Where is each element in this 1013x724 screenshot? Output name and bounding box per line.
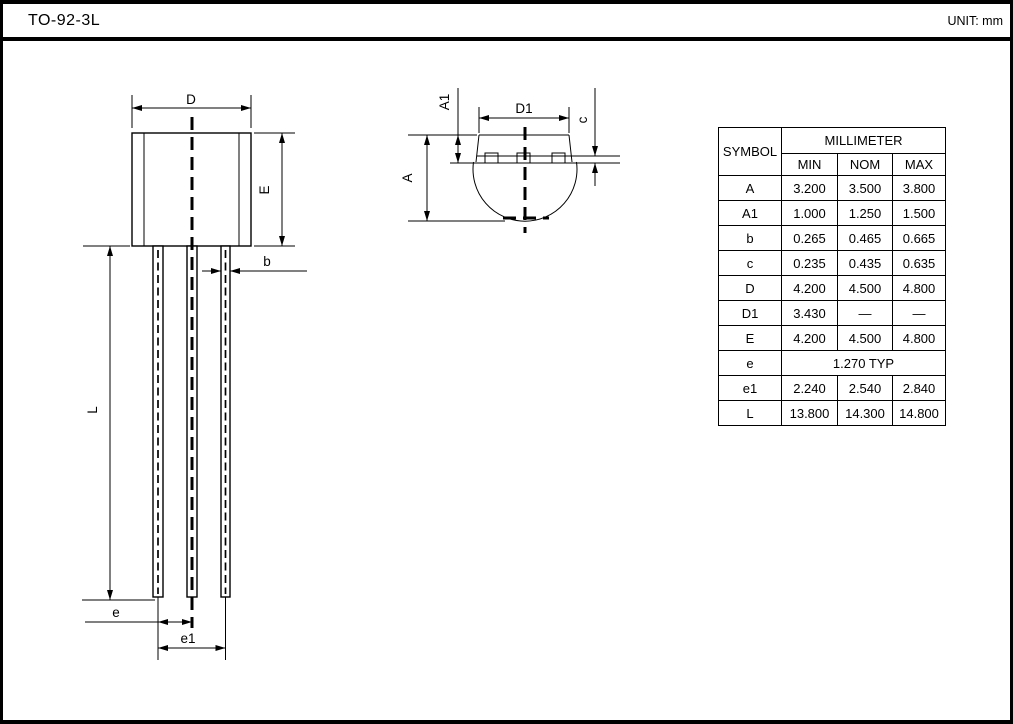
lead-3-cross-section	[552, 153, 565, 163]
table-header-max: MAX	[893, 154, 946, 176]
min-cell: 13.800	[782, 401, 838, 426]
min-cell: 4.200	[782, 326, 838, 351]
nom-cell: 2.540	[838, 376, 893, 401]
unit-label: UNIT: mm	[947, 4, 1003, 37]
min-cell: 4.200	[782, 276, 838, 301]
top-view-drawing: A A1 D1 c	[395, 75, 630, 240]
max-cell: 1.500	[893, 201, 946, 226]
max-cell: 0.665	[893, 226, 946, 251]
nom-cell: 3.500	[838, 176, 893, 201]
table-row-e1: e1 2.240 2.540 2.840	[719, 376, 946, 401]
max-cell: 2.840	[893, 376, 946, 401]
min-cell: 0.235	[782, 251, 838, 276]
min-cell: 0.265	[782, 226, 838, 251]
nom-cell: 0.435	[838, 251, 893, 276]
table-row-c: c 0.235 0.435 0.635	[719, 251, 946, 276]
symbol-cell: c	[719, 251, 782, 276]
symbol-cell: A1	[719, 201, 782, 226]
max-cell: 3.800	[893, 176, 946, 201]
table-header-nom: NOM	[838, 154, 893, 176]
table-header-min: MIN	[782, 154, 838, 176]
symbol-cell: D1	[719, 301, 782, 326]
table-row-D: D 4.200 4.500 4.800	[719, 276, 946, 301]
l-dimension-label: L	[85, 406, 100, 414]
symbol-cell: E	[719, 326, 782, 351]
a1-dimension-label: A1	[437, 94, 452, 111]
max-cell: 14.800	[893, 401, 946, 426]
table-row-E: E 4.200 4.500 4.800	[719, 326, 946, 351]
symbol-cell: L	[719, 401, 782, 426]
b-dimension-label: b	[263, 254, 271, 269]
symbol-cell: A	[719, 176, 782, 201]
page-title: TO-92-3L	[28, 4, 100, 37]
table-header-millimeter: MILLIMETER	[782, 128, 946, 154]
min-cell: 2.240	[782, 376, 838, 401]
d1-dimension-label: D1	[515, 101, 532, 116]
header-bar: TO-92-3L UNIT: mm	[3, 4, 1010, 37]
c-dimension-label: c	[575, 116, 590, 123]
nom-cell: —	[838, 301, 893, 326]
dimensions-table: SYMBOL MILLIMETER MIN NOM MAX A 3.200 3.…	[718, 127, 946, 426]
typ-cell: 1.270 TYP	[782, 351, 946, 376]
max-cell: 0.635	[893, 251, 946, 276]
max-cell: —	[893, 301, 946, 326]
nom-cell: 4.500	[838, 276, 893, 301]
table-row-A: A 3.200 3.500 3.800	[719, 176, 946, 201]
max-cell: 4.800	[893, 276, 946, 301]
table-header-symbol: SYMBOL	[719, 128, 782, 176]
table-row-D1: D1 3.430 — —	[719, 301, 946, 326]
max-cell: 4.800	[893, 326, 946, 351]
min-cell: 3.200	[782, 176, 838, 201]
nom-cell: 14.300	[838, 401, 893, 426]
min-cell: 3.430	[782, 301, 838, 326]
nom-cell: 1.250	[838, 201, 893, 226]
e-dimension-label: E	[257, 185, 272, 194]
symbol-cell: e1	[719, 376, 782, 401]
a-dimension-label: A	[400, 173, 415, 182]
e-pitch-label: e	[112, 605, 120, 620]
header-divider	[3, 37, 1010, 41]
nom-cell: 4.500	[838, 326, 893, 351]
min-cell: 1.000	[782, 201, 838, 226]
lead-1-cross-section	[485, 153, 498, 163]
table-row-b: b 0.265 0.465 0.665	[719, 226, 946, 251]
d-dimension-label: D	[186, 92, 196, 107]
nom-cell: 0.465	[838, 226, 893, 251]
symbol-cell: e	[719, 351, 782, 376]
table-row-e: e 1.270 TYP	[719, 351, 946, 376]
front-view-drawing: D E b L e e1	[60, 85, 323, 679]
e1-pitch-label: e1	[180, 631, 195, 646]
datasheet-page: TO-92-3L UNIT: mm D E	[0, 0, 1013, 724]
symbol-cell: b	[719, 226, 782, 251]
table-row-A1: A1 1.000 1.250 1.500	[719, 201, 946, 226]
table-row-L: L 13.800 14.300 14.800	[719, 401, 946, 426]
symbol-cell: D	[719, 276, 782, 301]
